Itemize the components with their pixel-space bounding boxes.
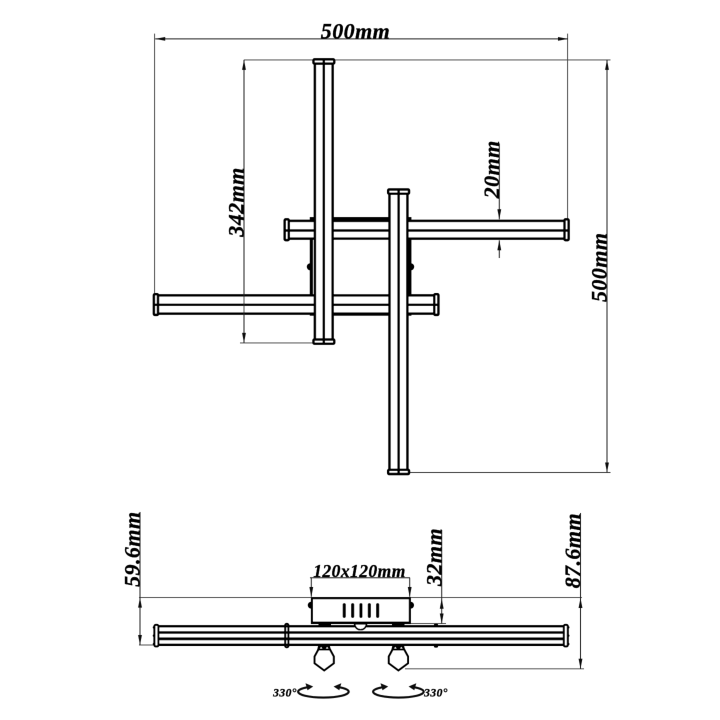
- svg-text:20mm: 20mm: [479, 140, 504, 199]
- svg-text:120x120mm: 120x120mm: [313, 561, 406, 581]
- svg-text:32mm: 32mm: [421, 528, 446, 587]
- svg-text:330°: 330°: [272, 688, 297, 700]
- svg-text:59.6mm: 59.6mm: [120, 511, 145, 586]
- svg-text:500mm: 500mm: [321, 18, 390, 43]
- svg-text:500mm: 500mm: [587, 233, 612, 302]
- svg-text:330°: 330°: [423, 688, 448, 700]
- svg-text:87.6mm: 87.6mm: [560, 513, 585, 588]
- svg-text:342mm: 342mm: [224, 167, 249, 237]
